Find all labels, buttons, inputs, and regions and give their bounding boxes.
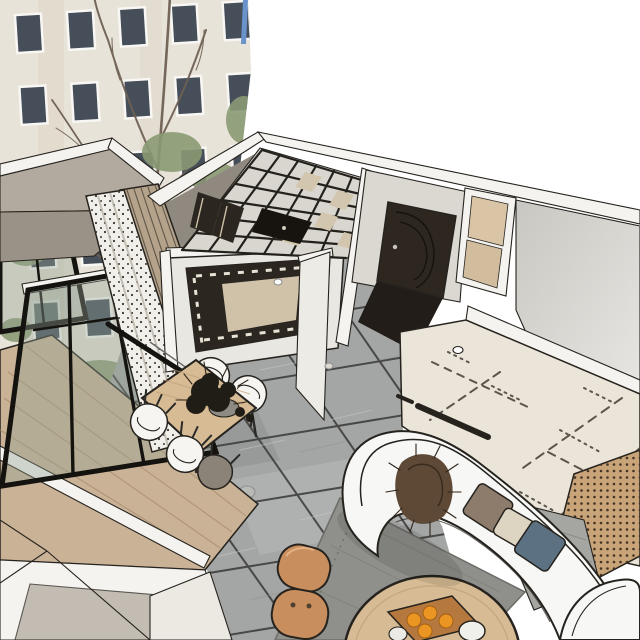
front-door — [377, 202, 456, 298]
niche-shelf-upper — [468, 196, 508, 246]
side-cup — [459, 621, 485, 640]
scene-svg — [0, 0, 640, 640]
door-knob — [393, 245, 397, 249]
teapot — [389, 627, 407, 640]
wall-knob — [325, 363, 333, 369]
render-canvas[interactable] — [0, 0, 640, 640]
cabinet-knob — [453, 347, 463, 354]
wall-knob — [274, 279, 282, 285]
